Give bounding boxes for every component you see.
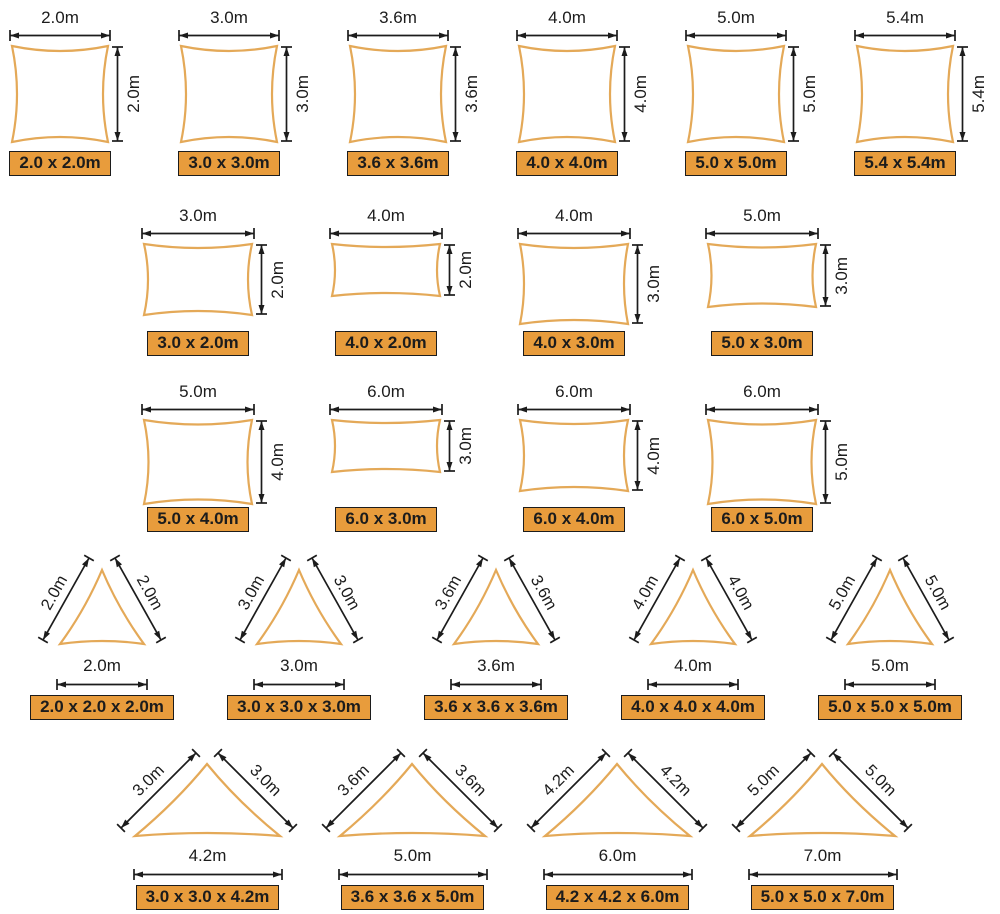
height-dimension-line [111,44,124,144]
height-dimension-group: 3.6m [448,44,482,144]
height-dimension-group: 4.0m [254,418,288,506]
size-badge: 4.2 x 4.2 x 6.0m [546,885,690,910]
sail-shape [706,242,818,309]
triangle-sail-with-side-dimensions: 3.0m3.0m [215,556,383,656]
width-dimension-label: 4.0m [555,206,593,226]
height-dimension-label: 3.0m [456,427,476,465]
height-dimension-group: 3.0m [818,242,852,309]
size-badge: 3.0 x 2.0m [147,331,248,356]
size-badge: 2.0 x 2.0 x 2.0m [30,695,174,720]
side-a-dimension-label: 3.6m [432,572,466,613]
width-dimension-line [681,28,791,41]
sail-size-item: 6.0m 5.0m 6.0 x 5.0m [706,382,818,532]
height-dimension-label: 5.4m [969,75,989,113]
width-dimension-line [325,402,447,415]
base-dimension-line [446,677,546,690]
sail-shape [518,418,630,493]
height-dimension-line [819,418,832,506]
height-dimension-line [631,418,644,493]
sail-size-item: 5.0m 4.0m 5.0 x 4.0m [142,382,254,532]
side-b-dimension-label: 2.0m [133,572,167,613]
height-dimension-label: 2.0m [268,261,288,299]
row-4-tri: 2.0m2.0m 2.0m 2.0 x 2.0 x 2.0m 3.0m3.0m … [0,556,1000,720]
size-badge: 3.0 x 3.0m [178,151,279,176]
sail-size-item: 5.0m5.0m 5.0m 5.0 x 5.0 x 5.0m [806,556,974,720]
width-dimension-line [850,28,960,41]
width-dimension-label: 4.0m [367,206,405,226]
height-dimension-label: 3.0m [832,257,852,295]
sail-size-item: 5.4m 5.4m 5.4 x 5.4m [855,8,955,176]
height-dimension-line [819,242,832,309]
height-dimension-line [255,418,268,506]
height-dimension-label: 4.0m [644,437,664,475]
side-b-dimension-label: 3.0m [330,572,364,613]
sail-shape-area: 3.0m [179,44,279,144]
side-a-dimension-label: 2.0m [38,572,72,613]
triangle-sail-with-side-dimensions: 3.6m3.6m [310,750,515,846]
sail-chart: 2.0m 2.0m 2.0 x 2.0m 3.0m 3.0m 3.0 x 3.0… [0,0,1000,914]
height-dimension-label: 4.0m [631,75,651,113]
height-dimension-label: 5.0m [832,443,852,481]
height-dimension-line [280,44,293,144]
width-dimension-line [701,226,823,239]
width-dimension-line [513,226,635,239]
base-dimension-label: 4.0m [674,656,712,676]
width-dimension-line [343,28,453,41]
base-dimension-label: 6.0m [599,846,637,866]
base-dimension-line [539,867,697,880]
height-dimension-group: 2.0m [254,242,288,317]
side-a-dimension-label: 3.0m [129,761,168,800]
size-badge: 4.0 x 3.0m [523,331,624,356]
height-dimension-group: 3.0m [630,242,664,326]
sail-shape-area: 3.0m [518,242,630,326]
sail-size-item: 3.0m 2.0m 3.0 x 2.0m [142,206,254,356]
sail-size-item: 3.0m 3.0m 3.0 x 3.0m [179,8,279,176]
height-dimension-line [618,44,631,144]
sail-shape [517,44,617,144]
sail-size-item: 6.0m 3.0m 6.0 x 3.0m [330,382,442,532]
base-dimension-label: 5.0m [394,846,432,866]
sail-size-item: 3.6m 3.6m 3.6 x 3.6m [348,8,448,176]
size-badge: 5.0 x 5.0 x 5.0m [818,695,962,720]
size-badge: 6.0 x 5.0m [711,507,812,532]
row-3-quad: 5.0m 4.0m 5.0 x 4.0m 6.0m 3.0m 6.0 x 3.0… [0,382,1000,532]
width-dimension-label: 3.0m [210,8,248,28]
sail-size-item: 5.0m5.0m 7.0m 5.0 x 5.0 x 7.0m [720,750,925,910]
triangle-sail-with-side-dimensions: 2.0m2.0m [18,556,186,656]
height-dimension-group: 3.0m [442,418,476,474]
sail-size-item: 2.0m 2.0m 2.0 x 2.0m [10,8,110,176]
width-dimension-line [325,226,447,239]
width-dimension-label: 5.4m [886,8,924,28]
width-dimension-label: 5.0m [717,8,755,28]
sail-shape-area: 2.0m [10,44,110,144]
size-badge: 6.0 x 3.0m [335,507,436,532]
triangle-sail-with-side-dimensions: 4.2m4.2m [515,750,720,846]
base-dimension-line [643,677,743,690]
size-badge: 6.0 x 4.0m [523,507,624,532]
sail-shape-area: 5.0m [686,44,786,144]
height-dimension-group: 4.0m [617,44,651,144]
sail-shape [142,242,254,317]
size-badge: 5.4 x 5.4m [854,151,955,176]
sail-shape [706,418,818,506]
base-dimension-line [129,867,287,880]
size-badge: 3.6 x 3.6 x 3.6m [424,695,568,720]
side-b-dimension-label: 5.0m [921,572,955,613]
sail-shape [179,44,279,144]
triangle-sail-with-side-dimensions: 5.0m5.0m [806,556,974,656]
width-dimension-line [512,28,622,41]
side-b-dimension-label: 3.0m [246,761,285,800]
height-dimension-line [449,44,462,144]
sail-size-item: 3.0m3.0m 3.0m 3.0 x 3.0 x 3.0m [215,556,383,720]
size-badge: 4.0 x 4.0m [516,151,617,176]
size-badge: 5.0 x 5.0m [685,151,786,176]
height-dimension-label: 2.0m [124,75,144,113]
base-dimension-line [249,677,349,690]
sail-size-item: 4.0m 3.0m 4.0 x 3.0m [518,206,630,356]
size-badge: 3.0 x 3.0 x 4.2m [136,885,280,910]
width-dimension-label: 5.0m [743,206,781,226]
base-dimension-line [52,677,152,690]
size-badge: 4.0 x 4.0 x 4.0m [621,695,765,720]
side-a-dimension-label: 3.6m [334,761,373,800]
sail-size-item: 5.0m 3.0m 5.0 x 3.0m [706,206,818,356]
width-dimension-label: 4.0m [548,8,586,28]
height-dimension-group: 5.0m [818,418,852,506]
size-badge: 5.0 x 3.0m [711,331,812,356]
base-dimension-line [334,867,492,880]
height-dimension-label: 5.0m [800,75,820,113]
size-badge: 3.6 x 3.6m [347,151,448,176]
base-dimension-line [840,677,940,690]
size-badge: 4.0 x 2.0m [335,331,436,356]
triangle-sail-with-side-dimensions: 3.0m3.0m [105,750,310,846]
height-dimension-group: 5.4m [955,44,989,144]
sail-shape [855,44,955,144]
base-dimension-label: 4.2m [189,846,227,866]
triangle-sail-with-side-dimensions: 3.6m3.6m [412,556,580,656]
width-dimension-label: 6.0m [555,382,593,402]
sail-shape [348,44,448,144]
sail-shape-area: 3.6m [348,44,448,144]
base-dimension-label: 3.6m [477,656,515,676]
sail-shape-area: 5.0m [706,418,818,506]
height-dimension-label: 4.0m [268,443,288,481]
side-b-dimension-label: 3.6m [451,761,490,800]
base-dimension-label: 2.0m [83,656,121,676]
sail-shape [142,418,254,506]
sail-shape [518,242,630,326]
width-dimension-label: 2.0m [41,8,79,28]
sail-shape-area: 2.0m [330,242,442,298]
sail-size-item: 4.0m 4.0m 4.0 x 4.0m [517,8,617,176]
height-dimension-line [255,242,268,317]
width-dimension-label: 3.0m [179,206,217,226]
width-dimension-line [137,402,259,415]
height-dimension-group: 4.0m [630,418,664,493]
base-dimension-label: 5.0m [871,656,909,676]
side-b-dimension-label: 5.0m [861,761,900,800]
height-dimension-line [956,44,969,144]
sail-size-item: 3.0m3.0m 4.2m 3.0 x 3.0 x 4.2m [105,750,310,910]
size-badge: 5.0 x 5.0 x 7.0m [751,885,895,910]
sail-shape-area: 4.0m [518,418,630,493]
row-5-tri_wide: 3.0m3.0m 4.2m 3.0 x 3.0 x 4.2m 3.6m3.6m … [0,750,1000,910]
height-dimension-label: 2.0m [456,251,476,289]
width-dimension-line [701,402,823,415]
side-a-dimension-label: 5.0m [826,572,860,613]
sail-shape [330,242,442,298]
height-dimension-line [631,242,644,326]
side-b-dimension-label: 4.2m [656,761,695,800]
sail-shape [686,44,786,144]
sail-shape [330,418,442,474]
side-a-dimension-label: 3.0m [235,572,269,613]
side-a-dimension-label: 5.0m [744,761,783,800]
width-dimension-line [174,28,284,41]
size-badge: 3.0 x 3.0 x 3.0m [227,695,371,720]
base-dimension-label: 7.0m [804,846,842,866]
row-2-quad: 3.0m 2.0m 3.0 x 2.0m 4.0m 2.0m 4.0 x 2.0… [0,206,1000,356]
width-dimension-label: 6.0m [743,382,781,402]
triangle-sail-with-side-dimensions: 4.0m4.0m [609,556,777,656]
sail-shape-area: 5.4m [855,44,955,144]
row-1-quad: 2.0m 2.0m 2.0 x 2.0m 3.0m 3.0m 3.0 x 3.0… [0,0,1000,176]
height-dimension-label: 3.0m [644,265,664,303]
sail-size-item: 3.6m3.6m 3.6m 3.6 x 3.6 x 3.6m [412,556,580,720]
side-b-dimension-label: 4.0m [724,572,758,613]
height-dimension-group: 2.0m [110,44,144,144]
height-dimension-line [443,418,456,474]
sail-size-item: 6.0m 4.0m 6.0 x 4.0m [518,382,630,532]
width-dimension-line [513,402,635,415]
size-badge: 2.0 x 2.0m [9,151,110,176]
size-badge: 3.6 x 3.6 x 5.0m [341,885,485,910]
sail-shape [10,44,110,144]
width-dimension-line [5,28,115,41]
size-badge: 5.0 x 4.0m [147,507,248,532]
width-dimension-label: 3.6m [379,8,417,28]
sail-size-item: 4.0m 2.0m 4.0 x 2.0m [330,206,442,356]
base-dimension-label: 3.0m [280,656,318,676]
width-dimension-label: 5.0m [179,382,217,402]
height-dimension-line [443,242,456,298]
base-dimension-line [744,867,902,880]
sail-shape-area: 3.0m [330,418,442,474]
height-dimension-group: 3.0m [279,44,313,144]
height-dimension-group: 5.0m [786,44,820,144]
sail-shape-area: 4.0m [142,418,254,506]
sail-shape-area: 3.0m [706,242,818,309]
sail-size-item: 5.0m 5.0m 5.0 x 5.0m [686,8,786,176]
side-a-dimension-label: 4.2m [539,761,578,800]
triangle-sail-with-side-dimensions: 5.0m5.0m [720,750,925,846]
sail-size-item: 2.0m2.0m 2.0m 2.0 x 2.0 x 2.0m [18,556,186,720]
height-dimension-label: 3.6m [462,75,482,113]
height-dimension-group: 2.0m [442,242,476,298]
height-dimension-line [787,44,800,144]
width-dimension-line [137,226,259,239]
side-a-dimension-label: 4.0m [629,572,663,613]
sail-shape-area: 2.0m [142,242,254,317]
height-dimension-label: 3.0m [293,75,313,113]
side-b-dimension-label: 3.6m [527,572,561,613]
sail-size-item: 4.2m4.2m 6.0m 4.2 x 4.2 x 6.0m [515,750,720,910]
sail-shape-area: 4.0m [517,44,617,144]
sail-size-item: 4.0m4.0m 4.0m 4.0 x 4.0 x 4.0m [609,556,777,720]
width-dimension-label: 6.0m [367,382,405,402]
sail-size-item: 3.6m3.6m 5.0m 3.6 x 3.6 x 5.0m [310,750,515,910]
